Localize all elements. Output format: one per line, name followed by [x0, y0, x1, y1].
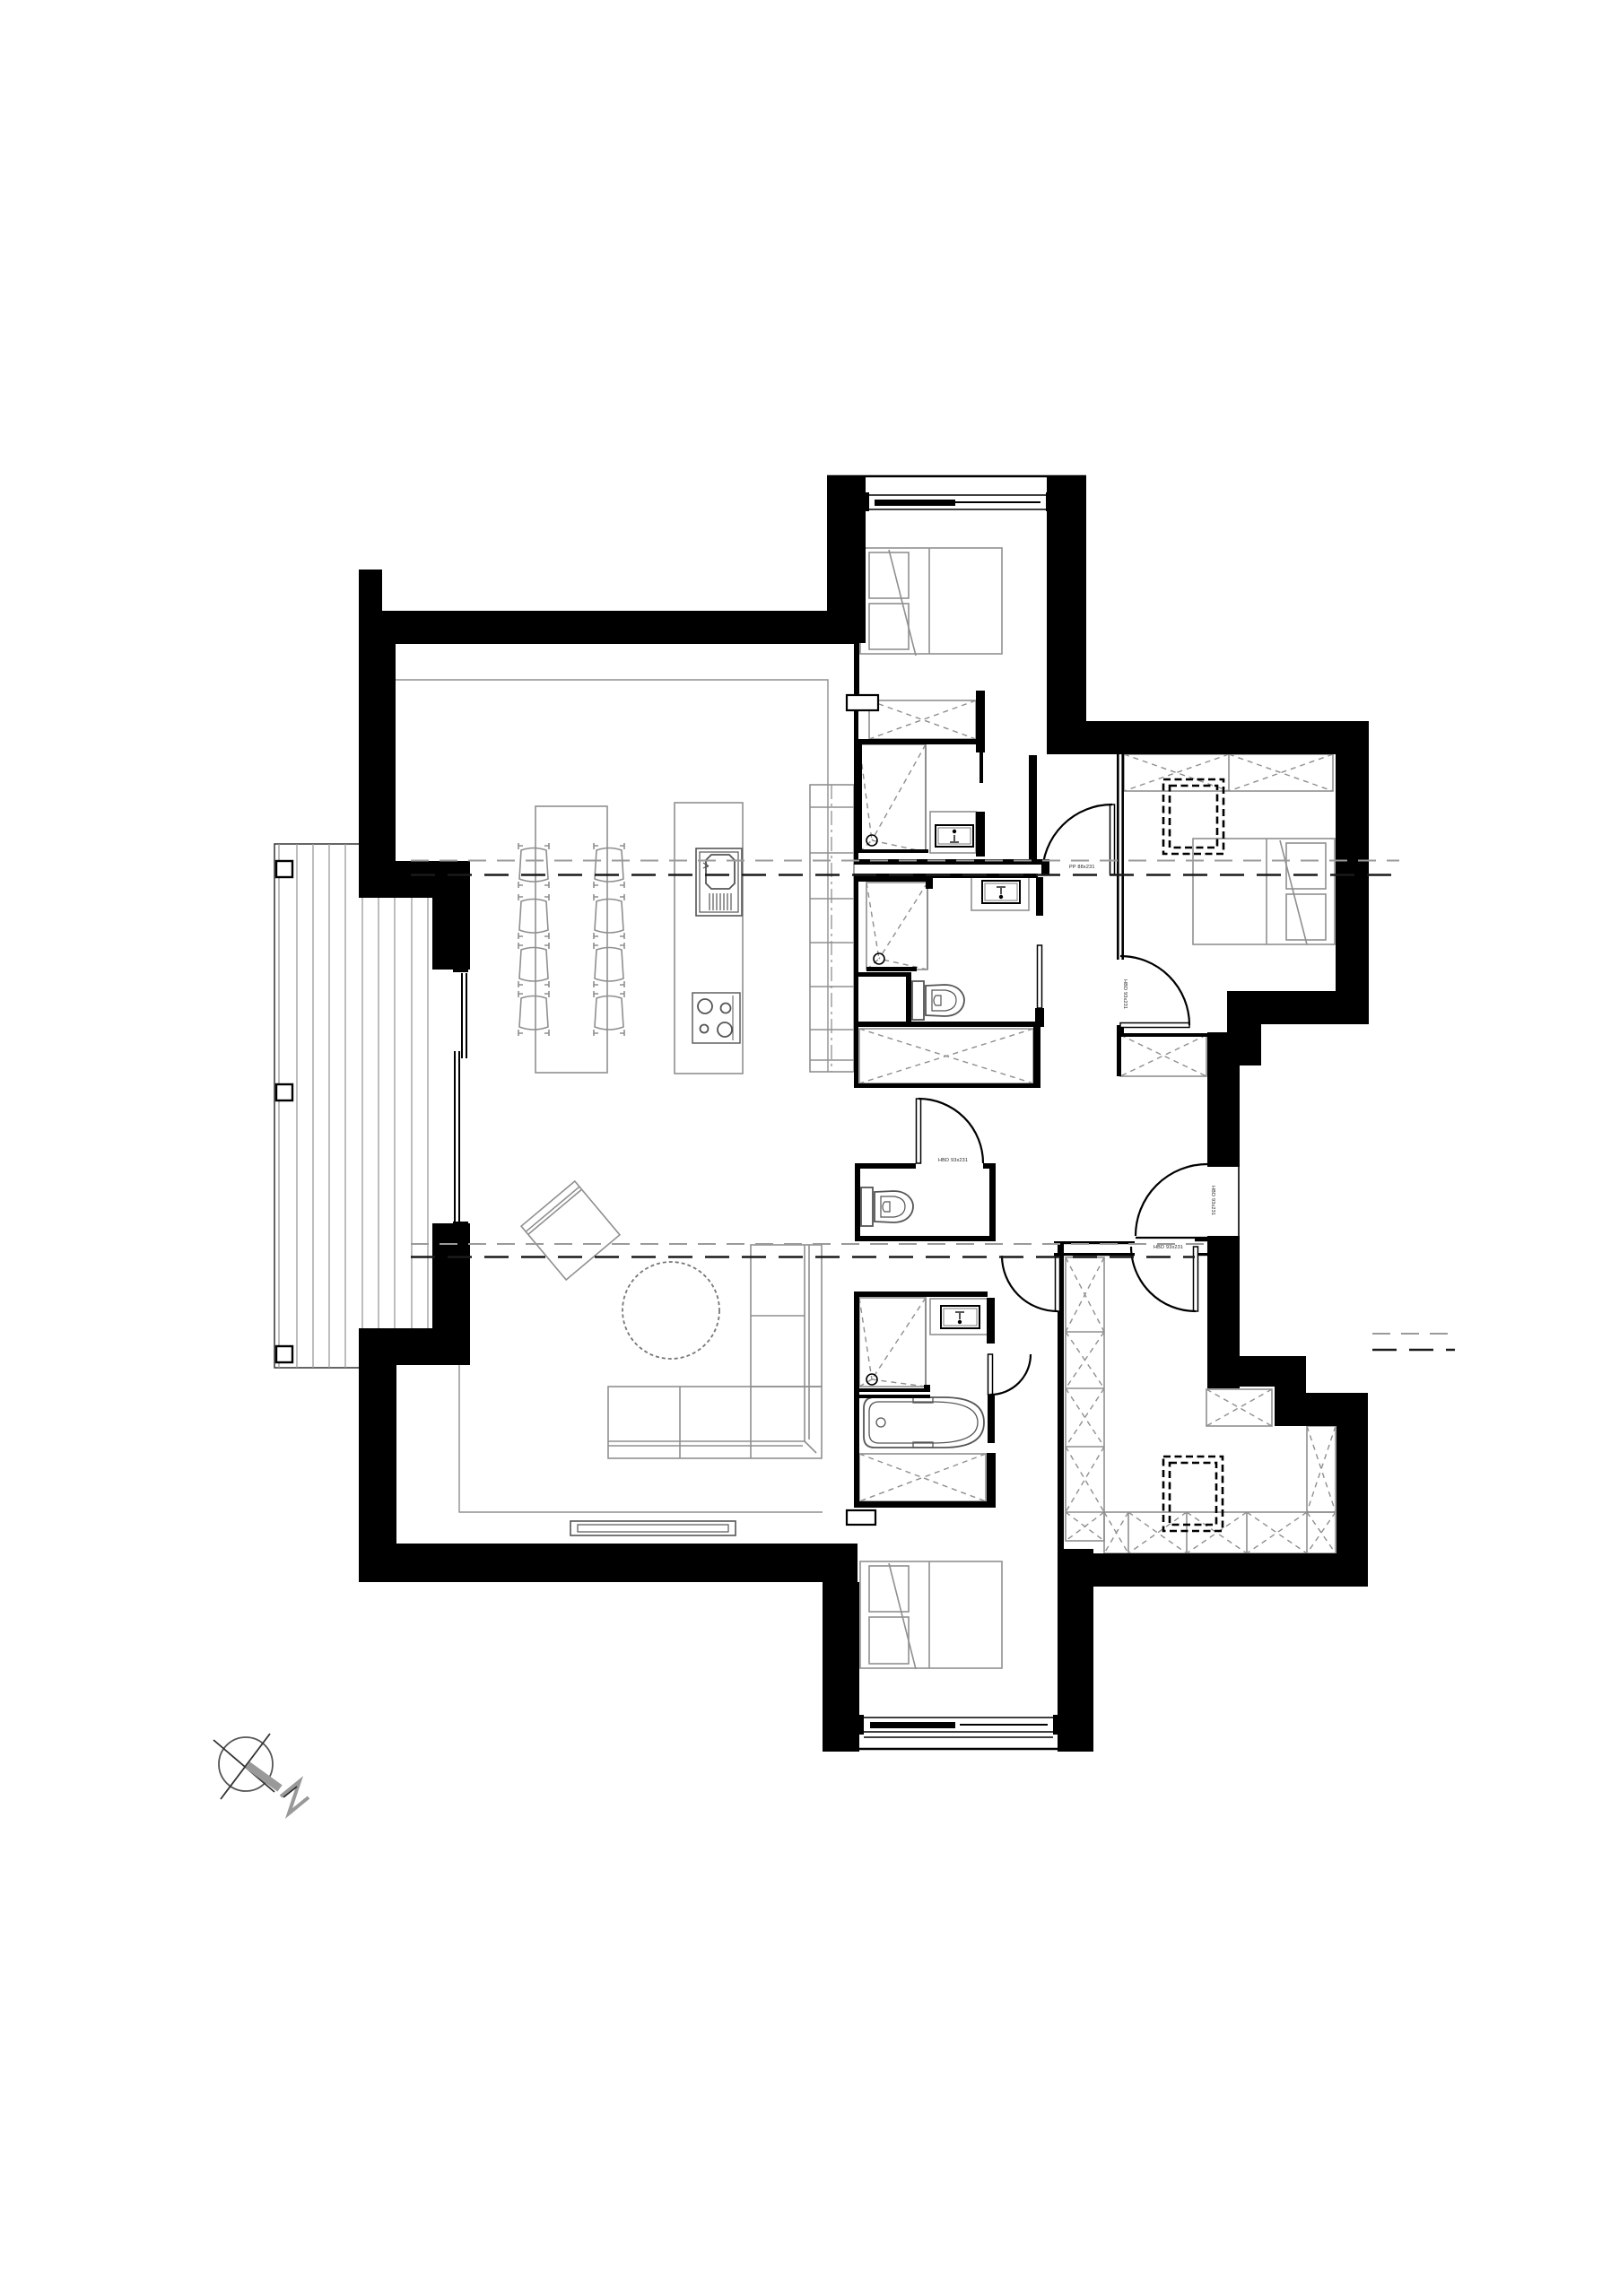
svg-text:PP 88x231: PP 88x231	[1069, 865, 1095, 870]
svg-text:HBD 93x231: HBD 93x231	[1154, 1245, 1183, 1250]
svg-text:HBD 93x231: HBD 93x231	[938, 1158, 968, 1163]
svg-text:HBD 93x231: HBD 93x231	[1210, 1186, 1215, 1215]
svg-text:HBD 93x231: HBD 93x231	[1122, 979, 1127, 1009]
